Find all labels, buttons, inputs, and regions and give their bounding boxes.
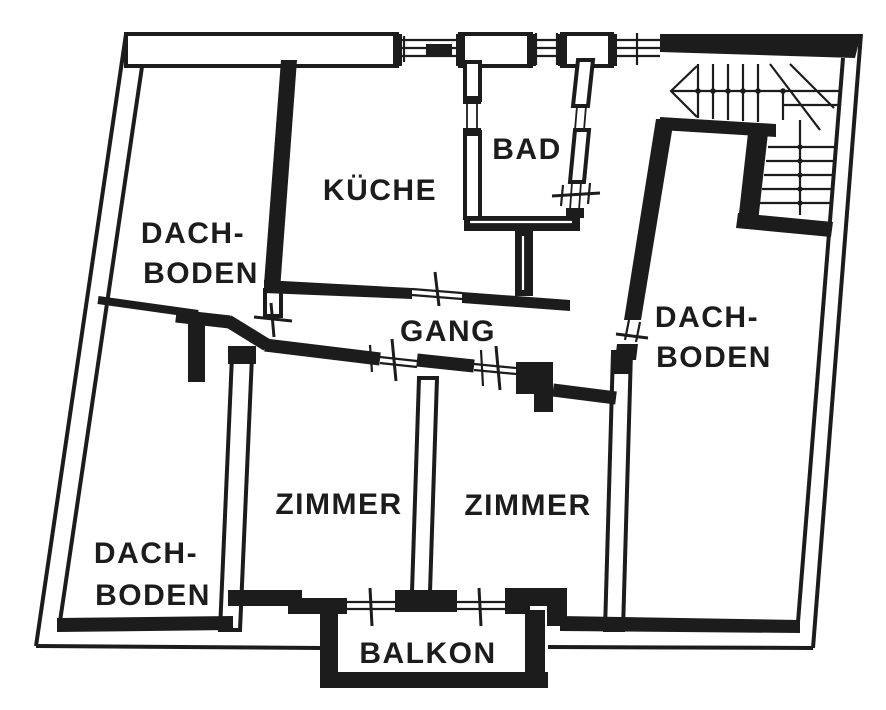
room-label-bad: BAD [492, 133, 562, 166]
wall-stub [188, 320, 205, 382]
wall-bad-right [570, 130, 589, 182]
wall-corridor-lower [417, 360, 474, 366]
wall-corridor-lower [553, 390, 616, 398]
wall-balcony-pier [395, 590, 457, 612]
window-marker [397, 36, 460, 62]
room-label-kueche: KÜCHE [323, 174, 437, 207]
room-label-zimmer-right: ZIMMER [464, 489, 591, 522]
wall-kueche-bottom [264, 280, 412, 299]
wall-corridor-lower [228, 321, 267, 345]
window-marker [531, 33, 562, 65]
wall-bad-left [465, 62, 480, 218]
window-pier [426, 44, 452, 57]
wall-bad-right [573, 60, 593, 106]
wall-between-zimmer [412, 378, 437, 592]
window-marker [612, 33, 660, 65]
room-label-dachboden-bottom-left: BODEN [95, 579, 211, 612]
room-label-dachboden-top-left: BODEN [143, 257, 259, 290]
room-label-dachboden-right: BODEN [656, 341, 772, 374]
wall-corridor-lower [265, 345, 380, 359]
door-marker [254, 183, 648, 626]
floor-plan-drawing: DACH- BODEN KÜCHE BAD GANG DACH- BODEN Z… [0, 0, 886, 710]
top-wall [126, 34, 861, 66]
wall-zimmer-left-west [220, 356, 252, 630]
wall-dachboden-right-bottom [560, 616, 800, 633]
room-label-balkon: BALKON [359, 637, 496, 670]
wall-kueche-left [264, 60, 297, 290]
room-label-dachboden-bottom-left: DACH- [94, 537, 198, 570]
room-label-dachboden-top-left: DACH- [141, 217, 245, 250]
floor-plan: DACH- BODEN KÜCHE BAD GANG DACH- BODEN Z… [0, 0, 886, 710]
room-label-zimmer-left: ZIMMER [275, 488, 402, 521]
room-label-dachboden-right: DACH- [655, 301, 759, 334]
room-label-gang: GANG [400, 315, 496, 348]
wall-hall-slanted [624, 119, 674, 320]
staircase [671, 64, 840, 237]
wall-dachboden-bottomleft-bottom [57, 616, 233, 632]
wall-dachboden-topleft-bottom [98, 300, 198, 314]
